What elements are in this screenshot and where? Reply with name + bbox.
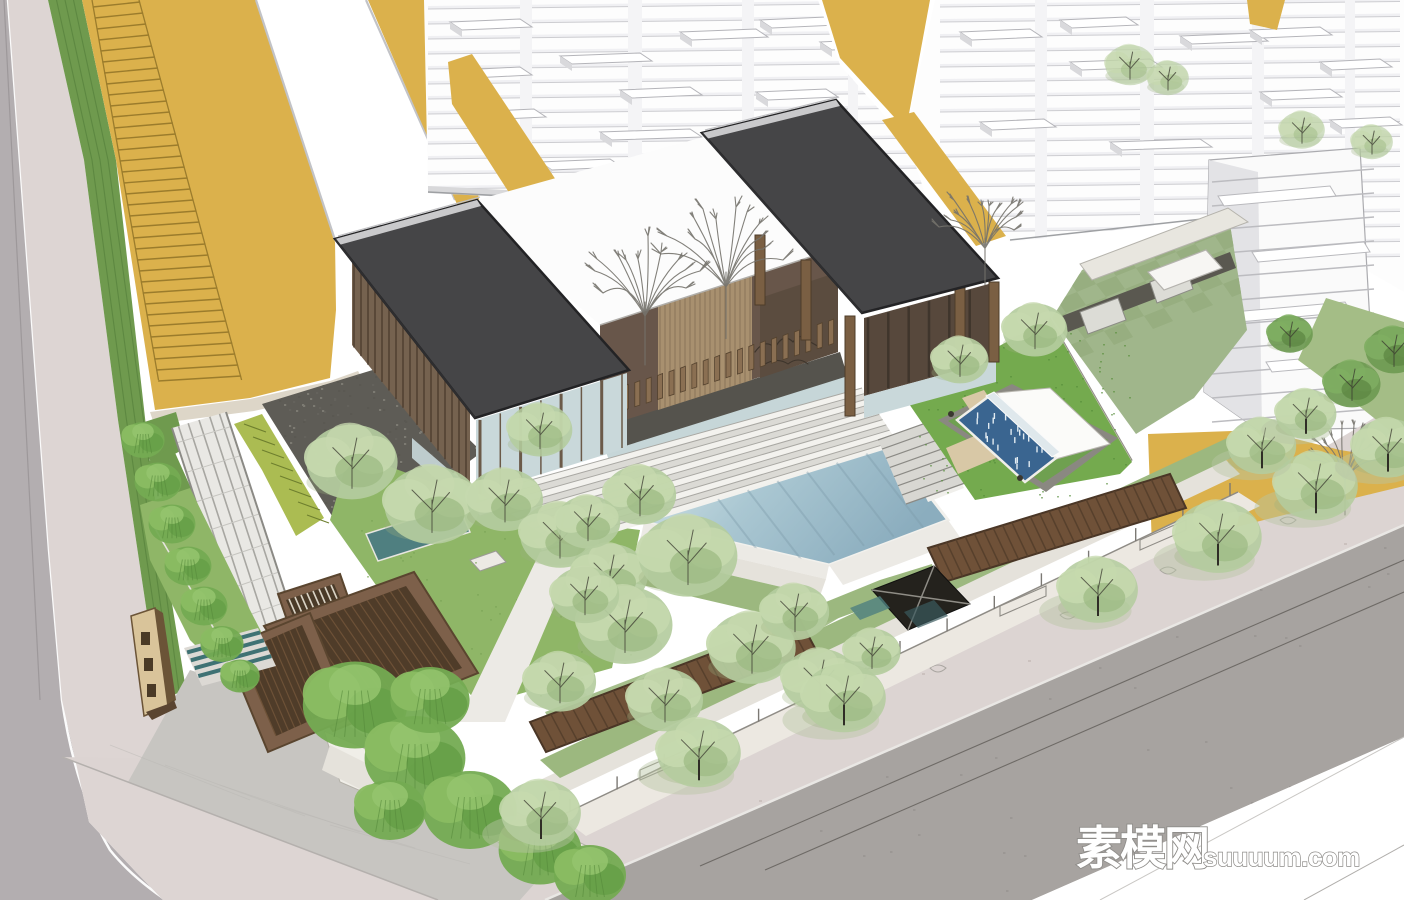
svg-text:素模网: 素模网 — [1076, 822, 1208, 874]
svg-text:suuuum.com: suuuum.com — [1203, 842, 1360, 872]
